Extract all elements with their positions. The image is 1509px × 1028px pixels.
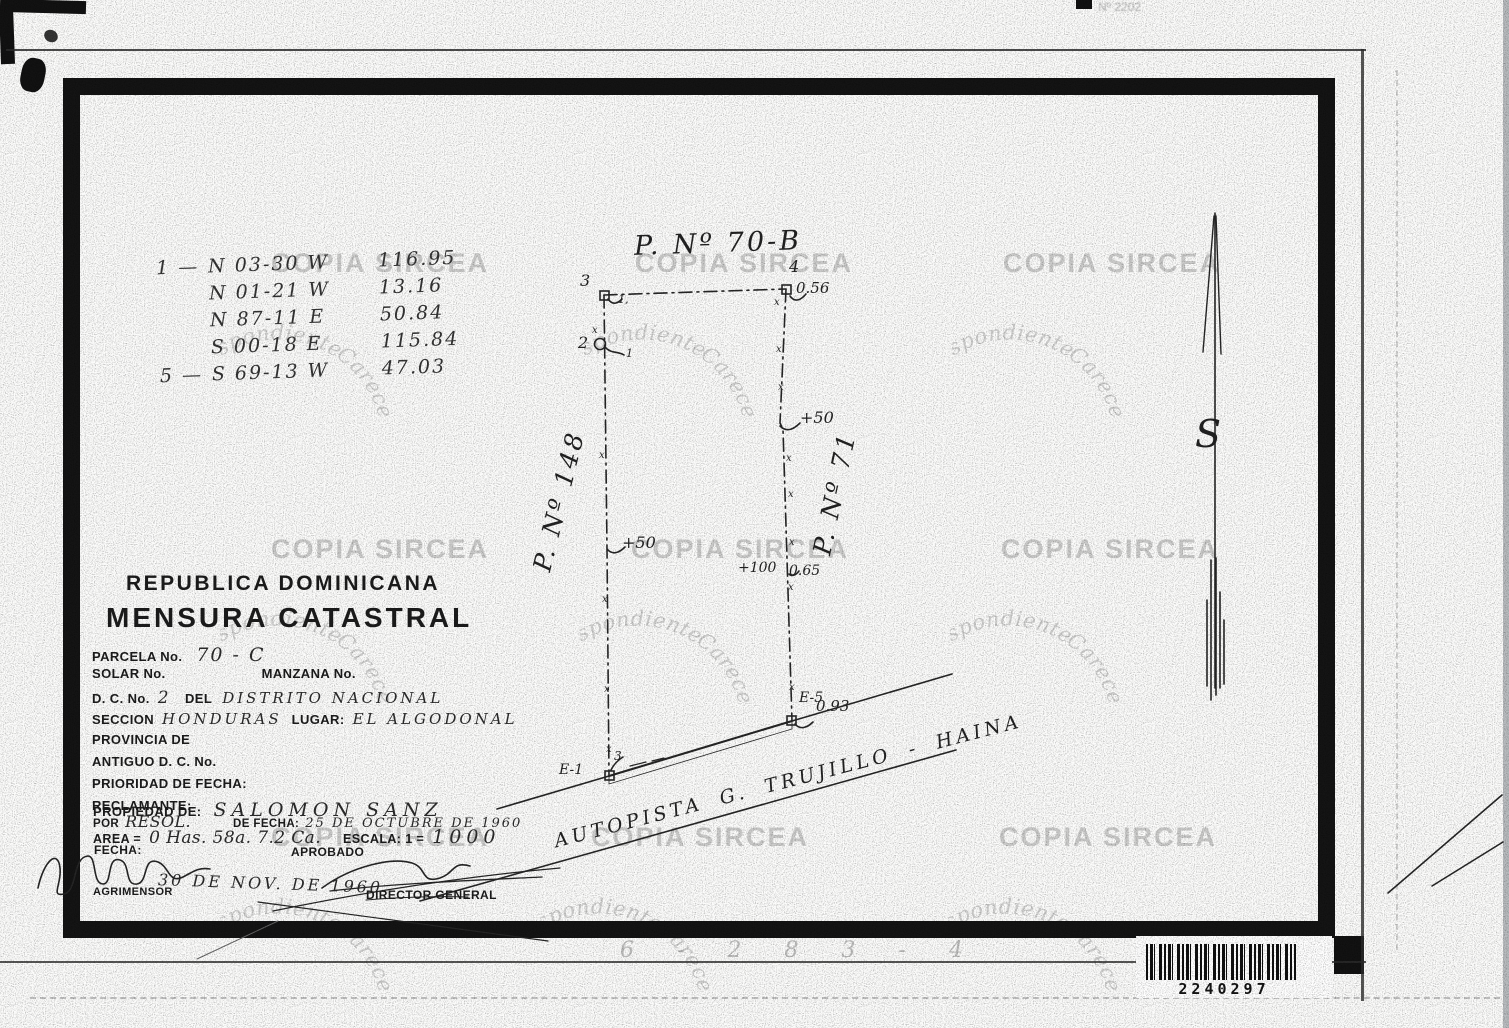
solar-label: SOLAR No. — [92, 666, 166, 681]
dc-value: 2 — [158, 688, 169, 708]
lugar-label: LUGAR: — [292, 712, 345, 727]
del-label: DEL — [185, 691, 212, 706]
barcode-number: 2240297 — [1136, 980, 1312, 998]
page-border-line-top — [6, 49, 1366, 51]
bearing-point: 1 — — [156, 255, 209, 284]
field-dc: D. C. No.2DELDISTRITO NACIONAL — [92, 688, 612, 710]
scan-blob-bottom-right — [1334, 936, 1364, 974]
point-sublabel-1a: 1, — [618, 293, 629, 306]
point-sublabel-e1-3: 3 — [614, 749, 622, 763]
scan-blob-top — [1076, 0, 1092, 9]
country-title: REPUBLICA DOMINICANA — [126, 572, 612, 596]
point-label-3: 3 — [580, 271, 590, 290]
field-solar-manzana: SOLAR No.MANZANA No. — [92, 666, 612, 688]
bearing-distance: 116.95 — [378, 247, 457, 277]
footer-code: 6 - 2 8 3 - 4 — [620, 938, 981, 963]
bearing-distance: 47.03 — [381, 355, 446, 384]
field-parcela: PARCELA No.70 - C — [92, 644, 612, 666]
scan-blob-corner — [18, 56, 49, 94]
bearings-table: 1 —N 03-30 W116.95 N 01-21 W13.16 N 87-1… — [156, 247, 461, 392]
fecha-label: FECHA: — [94, 843, 142, 857]
title-block: REPUBLICA DOMINICANA MENSURA CATASTRAL P… — [92, 572, 612, 820]
seccion-label: SECCION — [92, 712, 154, 727]
bearing-distance: 50.84 — [379, 301, 444, 330]
seccion-value: HONDURAS — [162, 710, 282, 728]
bearing-distance: 115.84 — [380, 328, 459, 358]
offset-label-093: 0.93 — [816, 697, 849, 715]
scanner-edge-strip — [1503, 0, 1509, 1028]
field-antiguo-dc: ANTIGUO D. C. No. — [92, 754, 612, 776]
dc-district-value: DISTRITO NACIONAL — [222, 689, 443, 707]
document-title: MENSURA CATASTRAL — [106, 602, 612, 634]
chainage-label-100: +100 — [738, 560, 776, 576]
bearing-point — [157, 282, 210, 311]
escala-label: ESCALA: 1 = — [343, 832, 424, 846]
north-arrow-letter: S — [1195, 412, 1221, 456]
parcela-label: PARCELA No. — [92, 649, 182, 664]
director-general-label: DIRECTOR GENERAL — [366, 888, 497, 902]
prioridad-label: PRIORIDAD DE FECHA: — [92, 776, 247, 791]
field-seccion: SECCIONHONDURASLUGAR:EL ALGODONAL — [92, 710, 612, 732]
barcode-bars — [1146, 944, 1296, 980]
top-stamp-number: Nº 2202 — [1098, 0, 1141, 14]
offset-label-056: 0.56 — [796, 279, 829, 297]
station-label-left-50: +50 — [622, 533, 656, 552]
page-border-line-right — [1361, 49, 1364, 1001]
station-label-right-50: +50 — [800, 408, 834, 427]
parcela-value: 70 - C — [196, 644, 265, 666]
manzana-label: MANZANA No. — [262, 666, 356, 681]
bearing-point — [158, 309, 211, 338]
scanned-cadastral-document: Carece de Valor Legal Sin la Certificaci… — [0, 0, 1509, 1028]
bearing-point — [159, 336, 212, 365]
point-label-4: 4 — [789, 257, 799, 276]
field-provincia: PROVINCIA DE — [92, 732, 612, 754]
scan-blob-left — [0, 6, 15, 64]
bearing-point: 5 — — [160, 363, 213, 392]
lugar-value: EL ALGODONAL — [353, 710, 518, 728]
parcel-label-70b: P. Nº 70-B — [634, 225, 803, 262]
escala-value: 1000 — [432, 826, 500, 848]
scan-blob-small — [42, 27, 60, 44]
point-sublabel-1b: 1 — [626, 347, 633, 360]
dc-label: D. C. No. — [92, 691, 150, 706]
aprobado-label: APROBADO — [291, 845, 364, 859]
barcode-label: 2240297 — [1136, 936, 1332, 998]
offset-label-065: 0.65 — [789, 563, 820, 579]
antiguo-label: ANTIGUO D. C. No. — [92, 754, 217, 769]
field-prioridad: PRIORIDAD DE FECHA: — [92, 776, 612, 798]
bearing-distance: 13.16 — [379, 274, 444, 303]
point-label-2: 2 — [578, 333, 588, 352]
provincia-label: PROVINCIA DE — [92, 732, 190, 747]
right-dashed-line — [1396, 70, 1398, 950]
